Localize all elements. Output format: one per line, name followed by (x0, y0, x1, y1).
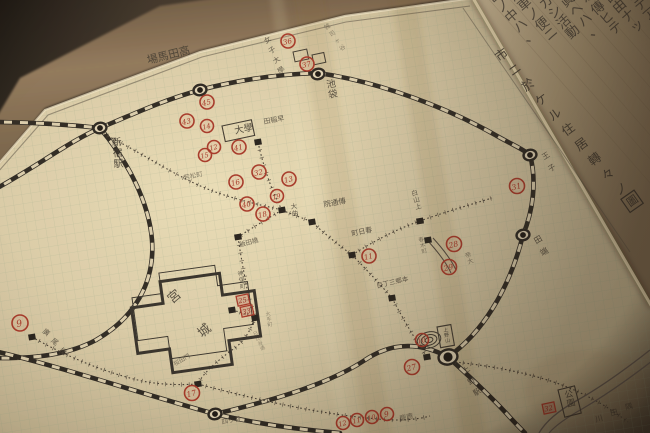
map-scene: 世ノ中ハ、汽車ノ便ニシカシ活動寫眞ヘハ、所々傳ヒテ不自由ナッタノデアル。宮城場馬… (0, 0, 650, 433)
right-shading (0, 0, 650, 433)
photo-of-hand-drawn-map: 世ノ中ハ、汽車ノ便ニシカシ活動寫眞ヘハ、所々傳ヒテ不自由ナッタノデアル。宮城場馬… (0, 0, 650, 433)
lighting (0, 0, 650, 433)
